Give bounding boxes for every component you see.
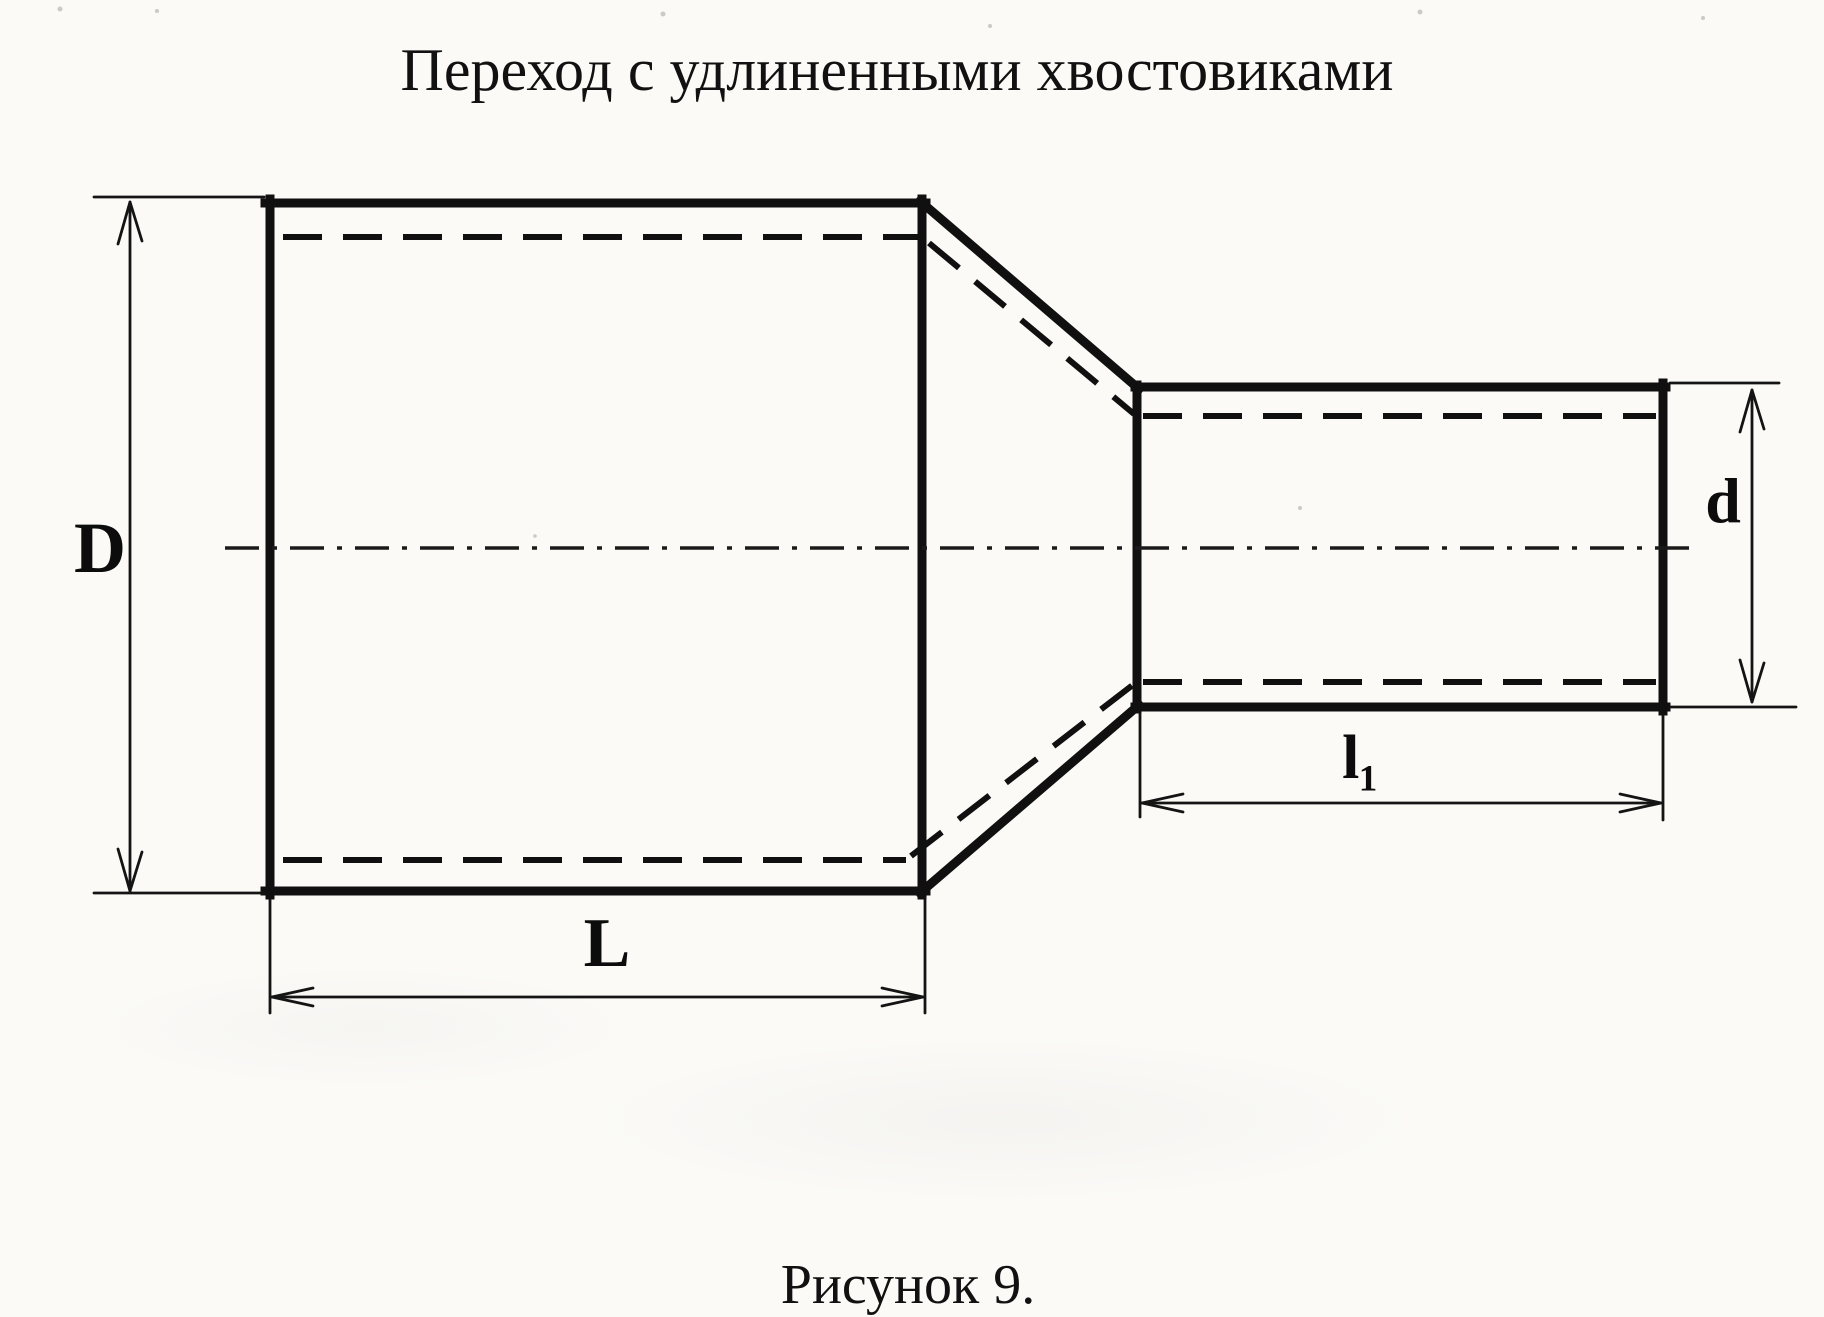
- scanned-page: Переход с удлиненными хвостовиками: [0, 0, 1824, 1317]
- cone-bottom-slant: [920, 705, 1139, 893]
- dimension-L: L: [270, 899, 925, 1013]
- technical-drawing: Переход с удлиненными хвостовиками: [0, 0, 1824, 1317]
- dimension-d-label: d: [1705, 465, 1741, 536]
- cone-inner-wall-top: [929, 243, 1134, 414]
- drawing-title: Переход с удлиненными хвостовиками: [401, 37, 1394, 103]
- dimension-D-label: D: [74, 508, 126, 588]
- dimension-l1-label: l₁: [1342, 724, 1378, 792]
- dimension-D: D: [74, 197, 264, 893]
- dimension-L-label: L: [584, 905, 631, 982]
- dimension-l1: l₁: [1140, 714, 1663, 820]
- figure-caption: Рисунок 9.: [781, 1254, 1035, 1316]
- cone-top-slant: [920, 201, 1139, 389]
- cone-inner-wall-bottom: [911, 684, 1134, 856]
- dimension-d: d: [1670, 383, 1796, 707]
